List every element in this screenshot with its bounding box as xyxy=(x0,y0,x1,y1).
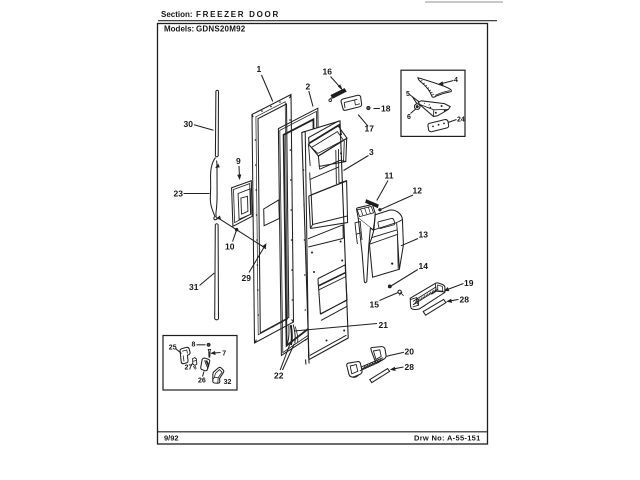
svg-text:25: 25 xyxy=(169,345,177,352)
svg-text:6: 6 xyxy=(407,114,411,121)
svg-text:Models:: Models: xyxy=(164,25,194,34)
svg-text:16: 16 xyxy=(323,67,333,77)
svg-text:29: 29 xyxy=(242,273,252,283)
svg-text:28: 28 xyxy=(405,362,415,372)
svg-text:32: 32 xyxy=(224,379,232,386)
svg-text:31: 31 xyxy=(189,282,199,292)
svg-text:5: 5 xyxy=(406,91,410,98)
svg-text:15: 15 xyxy=(370,300,380,310)
svg-text:9: 9 xyxy=(236,156,241,166)
svg-text:13: 13 xyxy=(419,230,429,240)
svg-text:27: 27 xyxy=(185,364,193,371)
svg-text:28: 28 xyxy=(460,295,470,305)
svg-text:GDNS20M92: GDNS20M92 xyxy=(196,25,246,34)
svg-text:23: 23 xyxy=(174,189,184,199)
svg-text:3: 3 xyxy=(369,147,374,157)
svg-text:21: 21 xyxy=(379,320,389,330)
svg-text:2: 2 xyxy=(306,82,311,92)
svg-text:8: 8 xyxy=(192,342,196,349)
svg-text:14: 14 xyxy=(419,261,429,271)
svg-text:4: 4 xyxy=(454,77,458,84)
svg-text:9/92: 9/92 xyxy=(164,434,179,443)
svg-text:1: 1 xyxy=(257,64,262,74)
svg-text:Drw No: A-55-151: Drw No: A-55-151 xyxy=(414,434,481,443)
svg-text:17: 17 xyxy=(365,124,375,134)
svg-text:FREEZER DOOR: FREEZER DOOR xyxy=(196,10,280,19)
svg-text:20: 20 xyxy=(405,347,415,357)
svg-text:7: 7 xyxy=(222,351,226,358)
svg-text:10: 10 xyxy=(225,242,235,252)
svg-text:19: 19 xyxy=(464,278,474,288)
svg-text:Section:: Section: xyxy=(161,10,193,19)
svg-text:12: 12 xyxy=(413,186,423,196)
svg-text:22: 22 xyxy=(274,371,284,381)
svg-text:24: 24 xyxy=(457,117,465,124)
svg-text:18: 18 xyxy=(381,104,391,114)
svg-text:26: 26 xyxy=(198,378,206,385)
svg-text:11: 11 xyxy=(385,171,394,181)
svg-text:30: 30 xyxy=(184,119,194,129)
